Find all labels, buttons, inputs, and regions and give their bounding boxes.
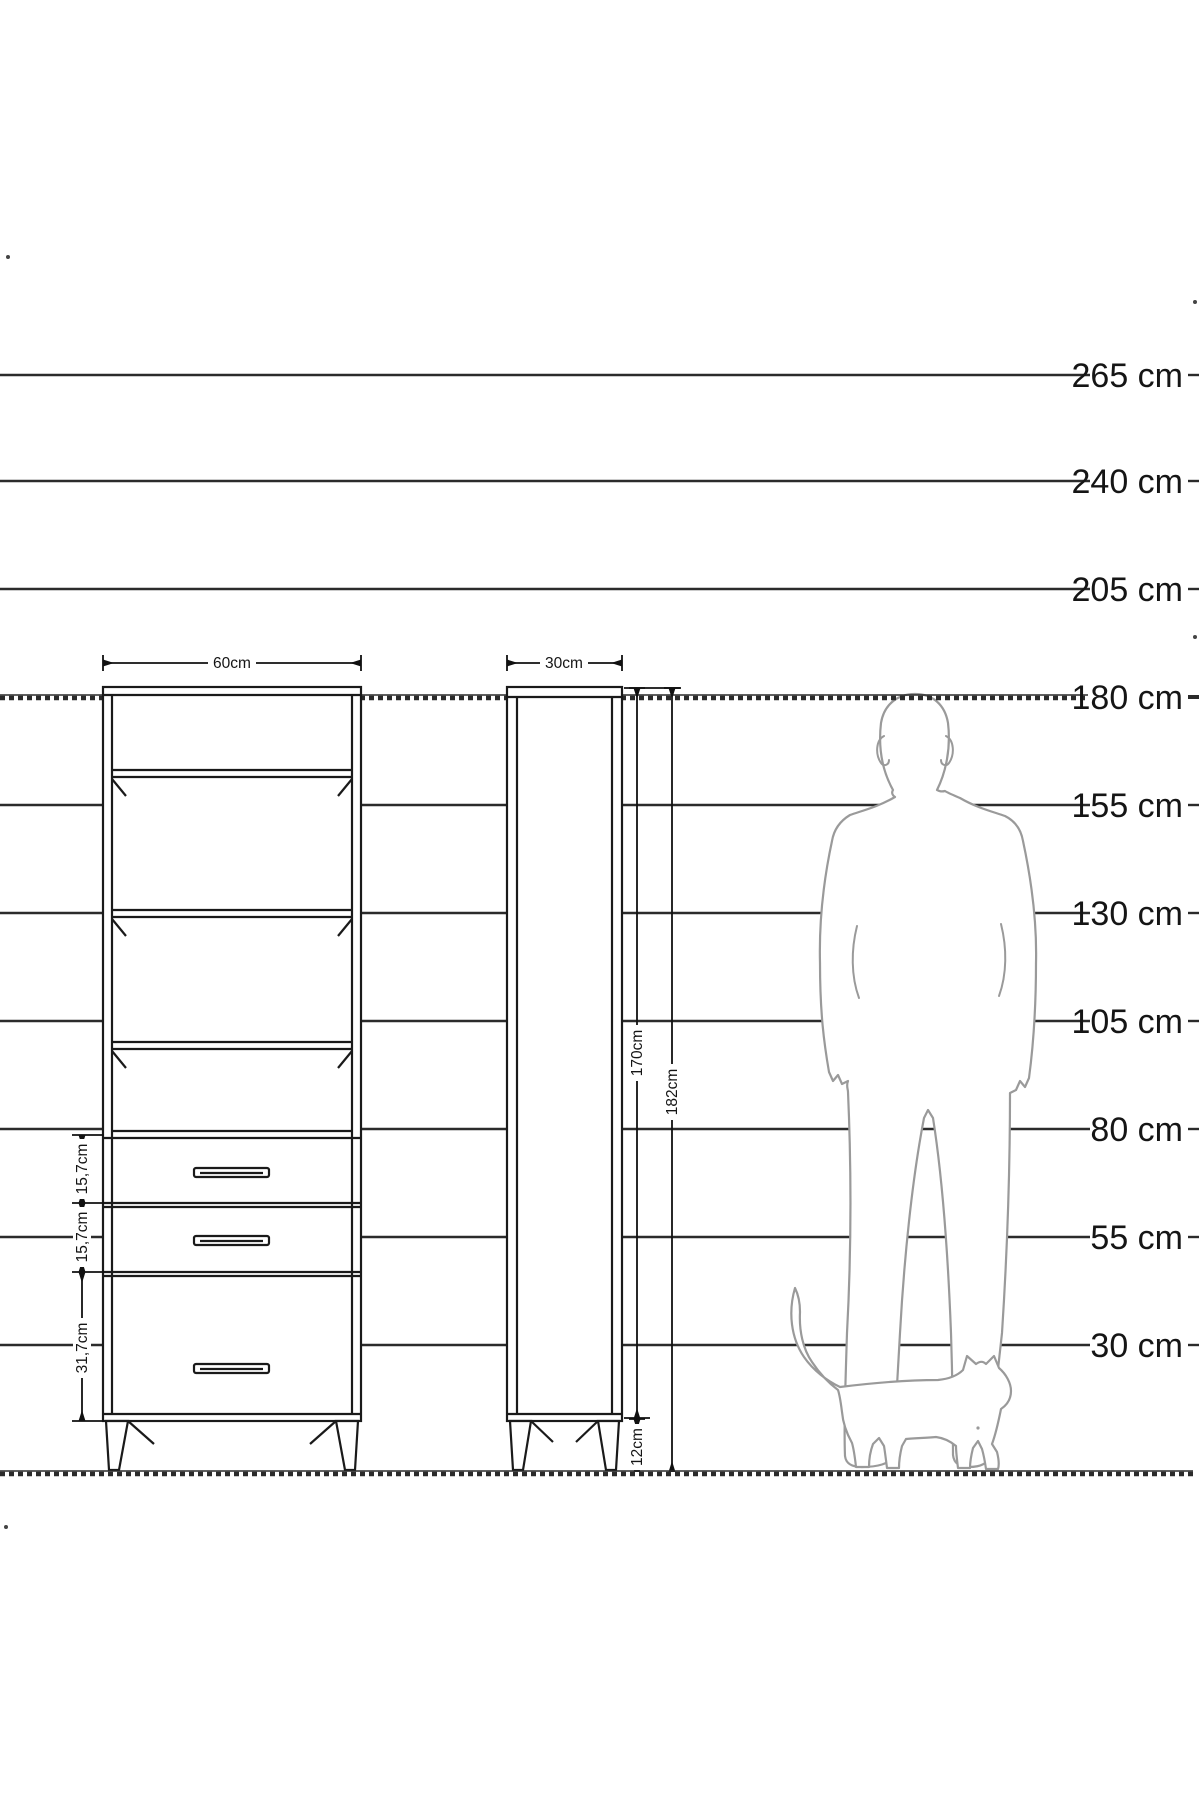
leg-height-label: 12cm <box>629 1428 646 1466</box>
ruler-label: 30 cm <box>1090 1327 1183 1365</box>
right-front-leg <box>336 1421 358 1470</box>
man-body-outline <box>820 694 1036 1467</box>
ground-line <box>0 1471 1193 1474</box>
right-front-leg-brace <box>310 1421 336 1444</box>
technical-drawing-page: 60cm 30cm 170cm <box>0 0 1200 1800</box>
drawer-middle-label: 15,7cm <box>74 1212 91 1263</box>
left-front-leg-brace <box>128 1421 154 1444</box>
dimension-carcass-height: 170cm <box>628 688 646 1419</box>
front-width-label: 60cm <box>213 655 251 672</box>
furniture-dimension-diagram: 60cm 30cm 170cm <box>0 0 1200 1800</box>
ruler-label: 130 cm <box>1072 895 1184 933</box>
side-depth-label: 30cm <box>545 655 583 672</box>
ruler-label: 205 cm <box>1072 571 1184 609</box>
dimension-leg-height: 12cm <box>629 1419 646 1472</box>
dimension-side-depth: 30cm <box>507 654 622 672</box>
left-front-leg <box>106 1421 128 1470</box>
ruler-label: 180 cm <box>1072 679 1184 717</box>
carcass-height-label: 170cm <box>629 1030 646 1077</box>
cabinet-carcass <box>103 687 361 1421</box>
ruler-label: 265 cm <box>1072 357 1184 395</box>
ruler-label: 105 cm <box>1072 1003 1184 1041</box>
dimension-drawer-chain: 15,7cm 15,7cm 31,7cm <box>72 1135 104 1421</box>
left-cabinet-front-view <box>103 687 361 1470</box>
height-ruler-labels: 265 cm240 cm205 cm180 cm155 cm130 cm105 … <box>1072 357 1200 1365</box>
side-right-leg-brace <box>576 1421 598 1442</box>
drawer-top-label: 15,7cm <box>74 1144 91 1195</box>
side-right-leg <box>598 1421 619 1470</box>
drawer-bottom-label: 31,7cm <box>74 1323 91 1374</box>
dimension-front-width: 60cm <box>103 654 361 672</box>
ruler-label: 80 cm <box>1090 1111 1183 1149</box>
side-left-leg <box>510 1421 531 1470</box>
right-cabinet-side-view <box>507 687 622 1470</box>
scale-figures <box>791 694 1036 1469</box>
ruler-label: 155 cm <box>1072 787 1184 825</box>
cabinet-side-carcass <box>507 687 622 1421</box>
ruler-label: 240 cm <box>1072 463 1184 501</box>
ruler-label: 55 cm <box>1090 1219 1183 1257</box>
total-height-label: 182cm <box>664 1069 681 1116</box>
cat-fur-dot <box>976 1426 979 1429</box>
side-left-leg-brace <box>531 1421 553 1442</box>
man-silhouette <box>820 694 1036 1467</box>
